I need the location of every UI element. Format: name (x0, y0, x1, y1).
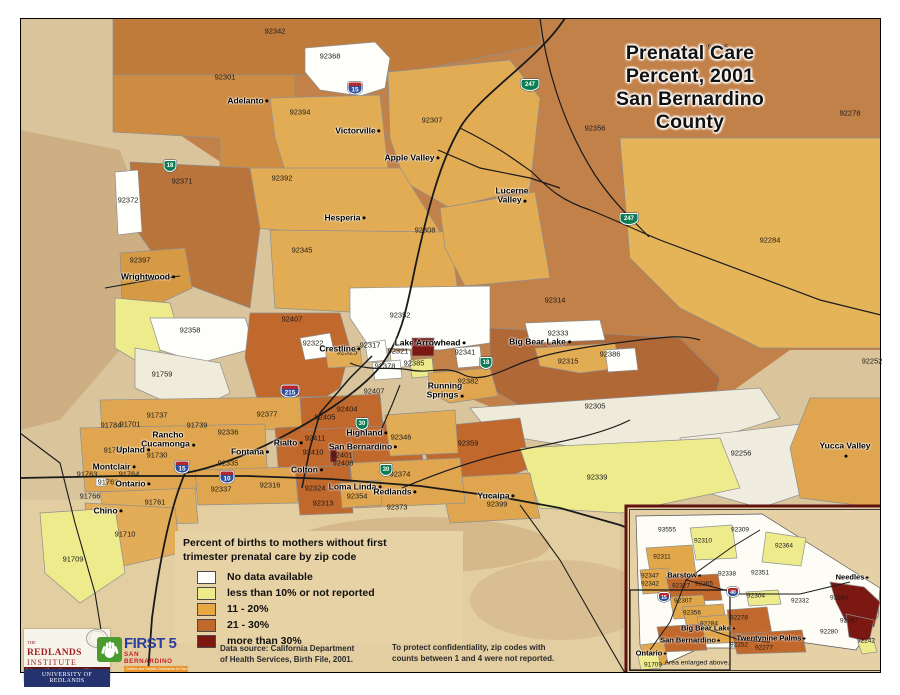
redlands-logo-the: THE (27, 640, 36, 645)
map-title-line1: Prenatal Care Percent, 2001 (585, 42, 795, 88)
legend-item-label: 21 - 30% (227, 619, 269, 631)
first5-logo: FIRST 5 SAN BERNARDINO Children and Fami… (97, 637, 187, 670)
first5-logo-region: SAN BERNARDINO (124, 651, 187, 665)
hand-icon (97, 637, 122, 662)
first5-logo-name: FIRST 5 (124, 637, 187, 651)
redlands-logo-institute: INSTITUTE (27, 659, 108, 668)
inset-caption: Area enlarged above. (665, 660, 730, 667)
map-title-line2: San Bernardino County (585, 88, 795, 134)
legend-swatch (197, 571, 216, 584)
confidentiality-note: To protect confidentiality, zip codes wi… (392, 643, 554, 665)
university-of-redlands-label: UNIVERSITY OF REDLANDS (24, 669, 110, 687)
first5-logo-tagline: Children and Families Commission for San… (124, 666, 188, 672)
legend-items: No data available less than 10% or not r… (175, 571, 463, 647)
legend-item-label: No data available (227, 571, 313, 583)
legend-swatch (197, 587, 216, 600)
legend-item: No data available (197, 571, 463, 583)
legend-swatch (197, 603, 216, 616)
legend-swatch (197, 619, 216, 632)
inset-map-graphics (626, 506, 884, 674)
legend-item: 21 - 30% (197, 619, 463, 631)
legend-item-label: less than 10% or not reported (227, 587, 375, 599)
legend-heading: Percent of births to mothers without fir… (183, 537, 463, 564)
legend-item: less than 10% or not reported (197, 587, 463, 599)
legend-item-label: 11 - 20% (227, 603, 268, 615)
legend: Percent of births to mothers without fir… (175, 531, 463, 643)
legend-item: 11 - 20% (197, 603, 463, 615)
legend-swatch (197, 635, 216, 648)
map-title: Prenatal Care Percent, 2001 San Bernardi… (585, 42, 795, 134)
data-source-note: Data source: California Department of He… (220, 644, 354, 666)
map-poster: 9234292368923019239492307923659227892356… (0, 0, 900, 695)
